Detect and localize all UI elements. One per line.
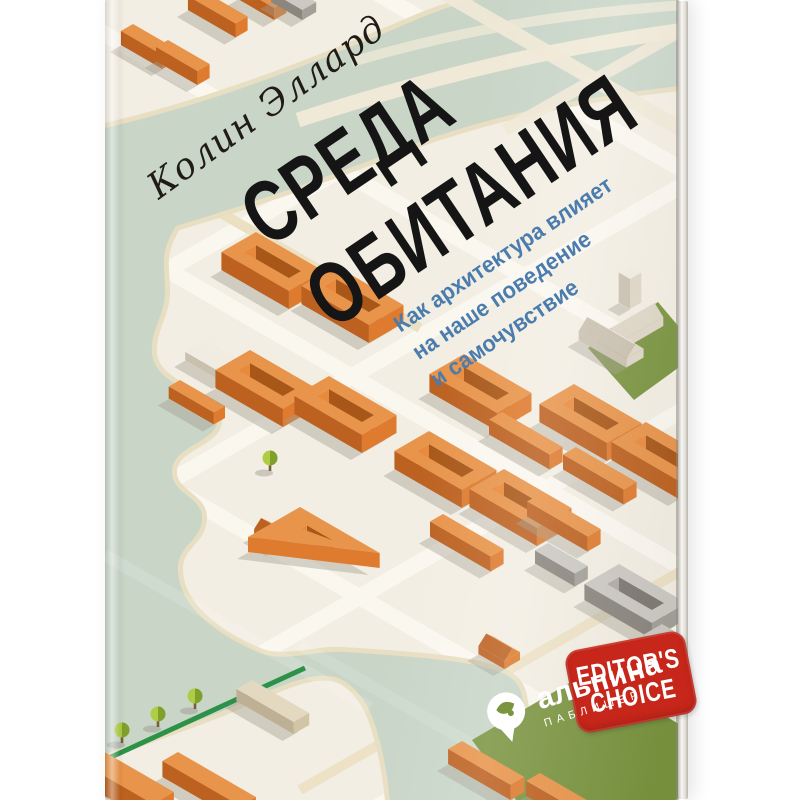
book-product-photo: Колин Эллард СРЕДА ОБИТАНИЯ Как архитект… — [0, 0, 800, 800]
